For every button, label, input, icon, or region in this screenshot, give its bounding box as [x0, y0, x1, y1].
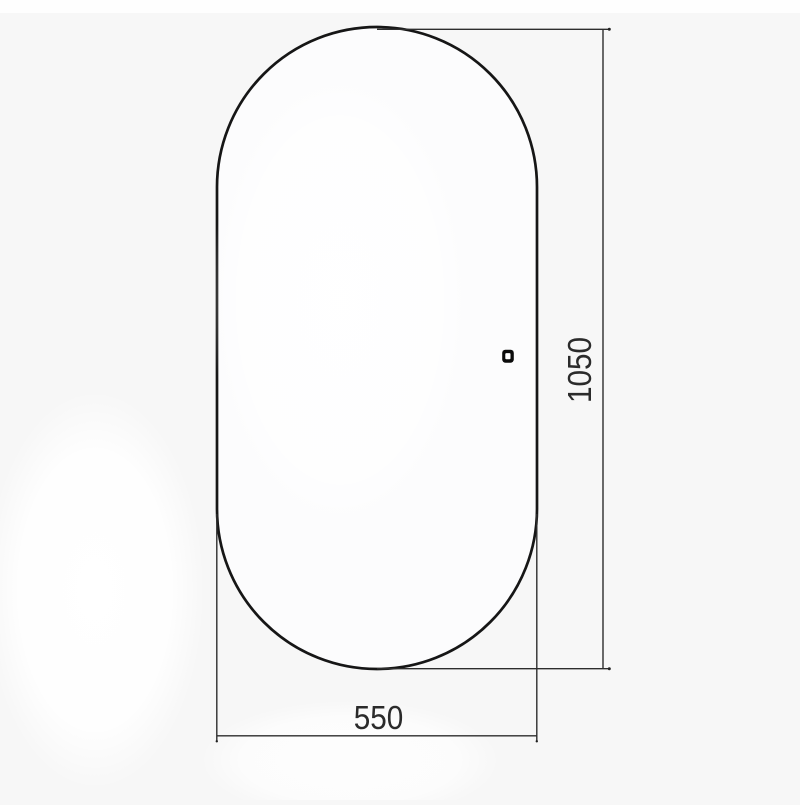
- svg-text:550: 550: [354, 700, 404, 737]
- svg-text:1050: 1050: [562, 337, 599, 403]
